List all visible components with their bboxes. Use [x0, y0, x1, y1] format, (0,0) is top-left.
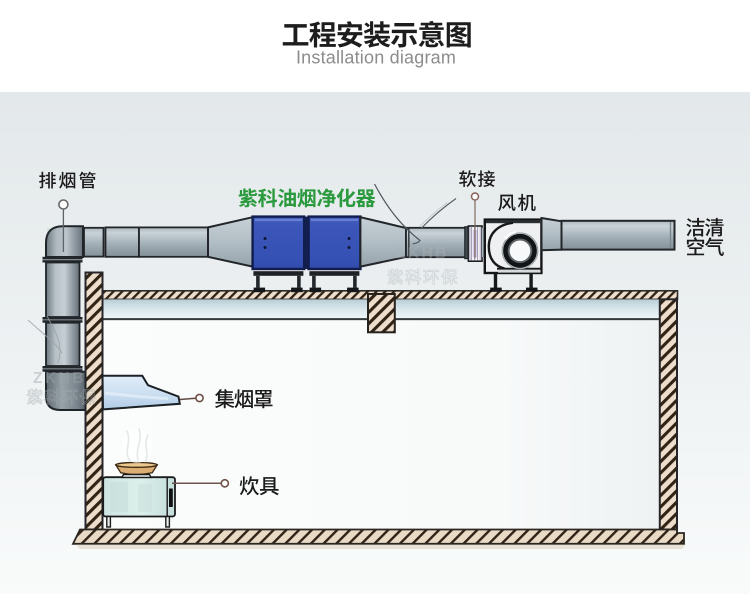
- svg-text:Installation diagram: Installation diagram: [296, 48, 456, 68]
- svg-text:ZKHB: ZKHB: [33, 370, 86, 387]
- svg-text:ZKHB: ZKHB: [396, 245, 448, 262]
